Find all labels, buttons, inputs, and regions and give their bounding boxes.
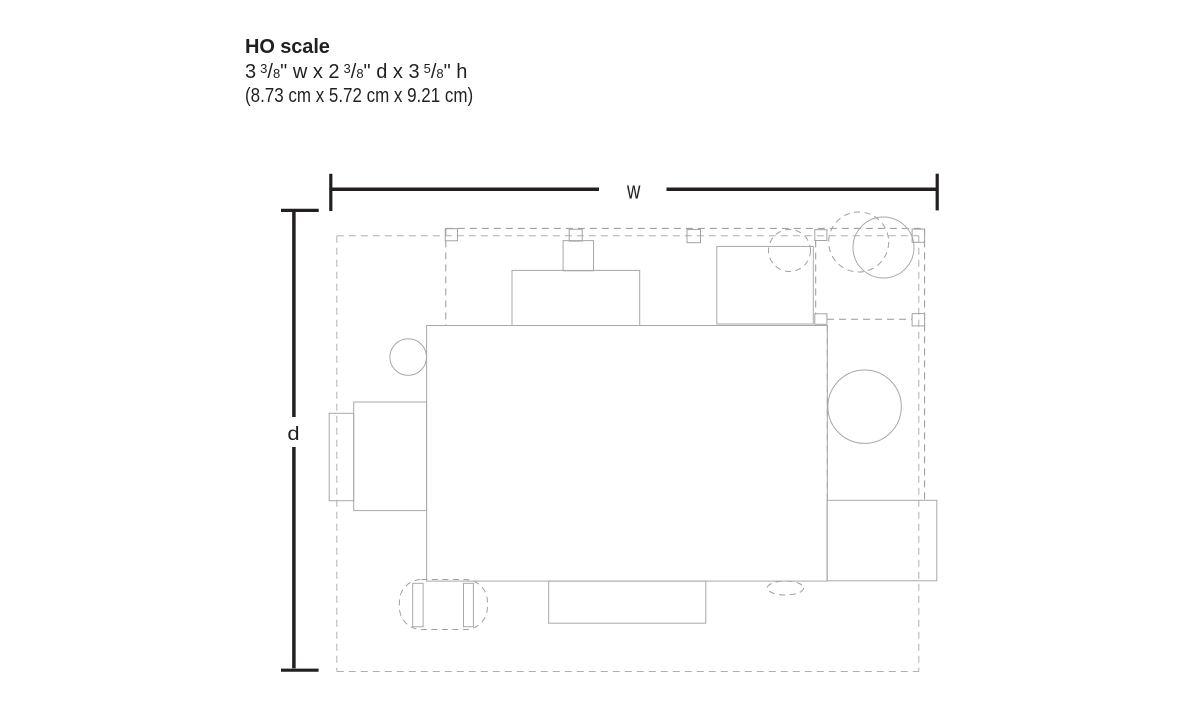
svg-text:w: w xyxy=(626,177,641,204)
svg-text:d: d xyxy=(287,423,299,445)
